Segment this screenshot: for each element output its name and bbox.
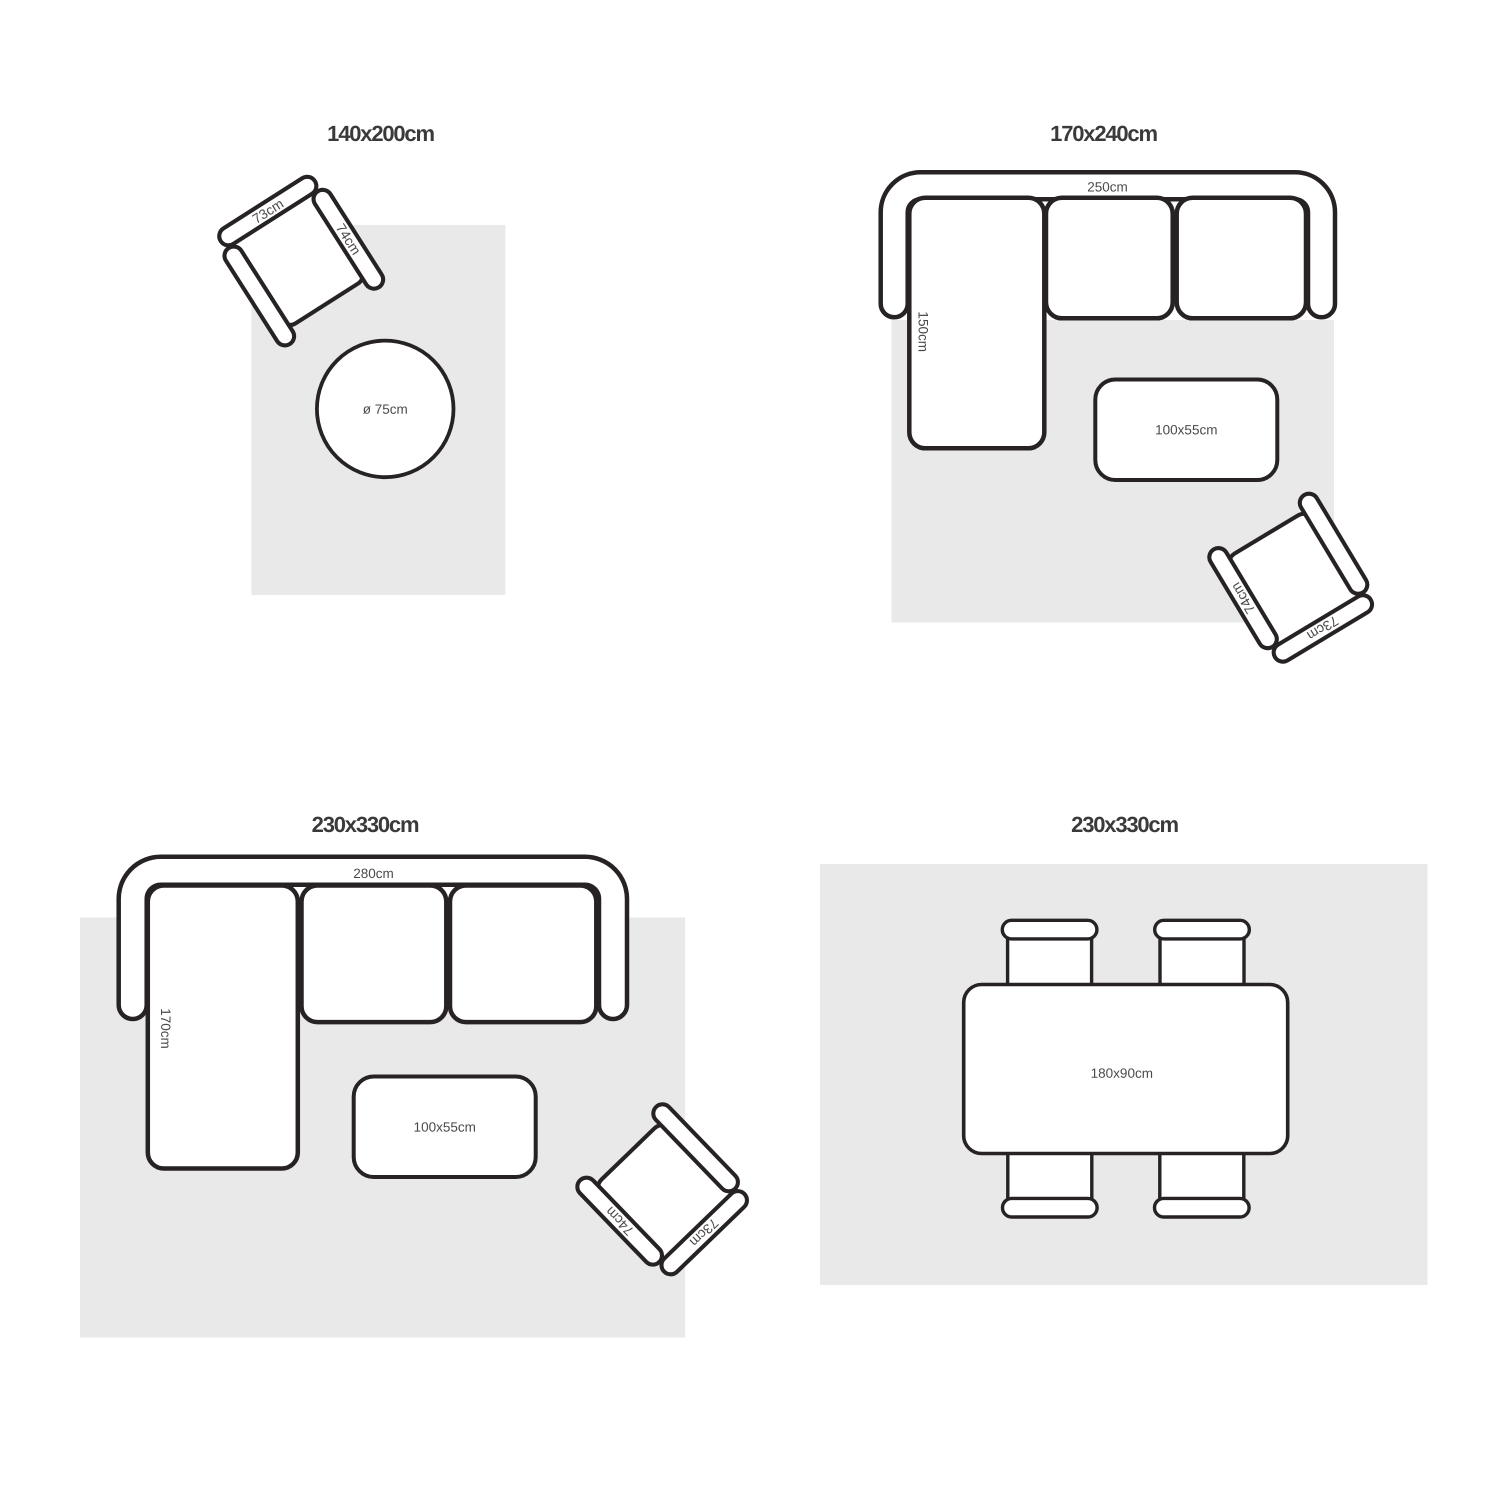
svg-text:ø 75cm: ø 75cm xyxy=(363,402,408,417)
svg-text:100x55cm: 100x55cm xyxy=(414,1120,476,1135)
svg-text:100x55cm: 100x55cm xyxy=(1155,422,1217,437)
svg-text:150cm: 150cm xyxy=(916,311,931,352)
svg-text:140x200cm: 140x200cm xyxy=(327,121,434,146)
svg-text:230x330cm: 230x330cm xyxy=(312,812,419,837)
svg-text:170x240cm: 170x240cm xyxy=(1050,121,1157,146)
svg-text:230x330cm: 230x330cm xyxy=(1071,812,1178,837)
svg-text:180x90cm: 180x90cm xyxy=(1091,1066,1153,1081)
svg-text:250cm: 250cm xyxy=(1087,179,1128,194)
svg-text:280cm: 280cm xyxy=(353,866,394,881)
svg-text:170cm: 170cm xyxy=(158,1008,173,1049)
